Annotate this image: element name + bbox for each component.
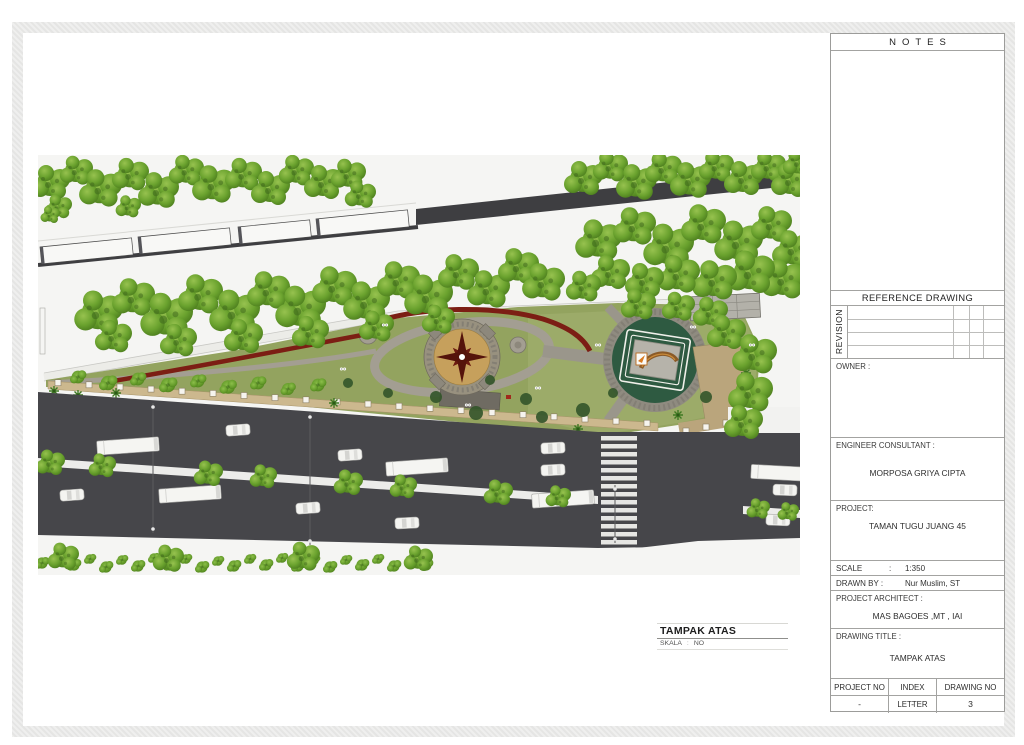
revision-col-line <box>953 306 954 358</box>
owner-section: OWNER : <box>831 359 1004 438</box>
plan-scale-label: SKALA <box>660 640 682 647</box>
scale-colon: : <box>889 561 891 576</box>
engineer-consultant-section: ENGINEER CONSULTANT : MORPOSA GRIYA CIPT… <box>831 438 1004 501</box>
notes-header: NOTES <box>831 34 1004 51</box>
number-table-value-row: - - 3 <box>831 696 1004 713</box>
plan-caption: TAMPAK ATAS SKALA:NO <box>657 623 788 650</box>
index-letter-header: INDEX LETTER <box>889 679 937 695</box>
plan-caption-title: TAMPAK ATAS <box>657 624 788 639</box>
monument-plaza <box>603 308 707 412</box>
drawing-title-label: DRAWING TITLE : <box>836 632 901 641</box>
project-architect-name: MAS BAGOES ,MT , IAI <box>831 611 1004 621</box>
revision-table: REVISION <box>831 306 1004 359</box>
drawing-title-section: DRAWING TITLE : TAMPAK ATAS <box>831 629 1004 679</box>
drawing-no-header: DRAWING NO <box>937 679 1004 695</box>
plan-caption-scale: SKALA:NO <box>657 639 788 650</box>
project-label: PROJECT: <box>836 504 874 513</box>
revision-row-line <box>848 345 1004 346</box>
project-no-header: PROJECT NO <box>831 679 889 695</box>
scale-row: SCALE : 1:350 <box>831 561 1004 576</box>
revision-row-line <box>848 332 1004 333</box>
owner-label: OWNER : <box>836 362 870 371</box>
drawn-by-row: DRAWN BY : Nur Muslim, ST <box>831 576 1004 591</box>
site-plan-svg <box>38 155 800 575</box>
revision-col-line <box>969 306 970 358</box>
engineer-consultant-name: MORPOSA GRIYA CIPTA <box>831 468 1004 478</box>
project-no-value: - <box>831 696 889 713</box>
project-name: TAMAN TUGU JUANG 45 <box>831 521 1004 531</box>
revision-label-cell: REVISION <box>831 306 848 358</box>
reference-drawing-header: REFERENCE DRAWING <box>831 291 1004 306</box>
number-table-header-row: PROJECT NO INDEX LETTER DRAWING NO <box>831 679 1004 696</box>
drawn-by-label: DRAWN BY : <box>836 576 883 591</box>
project-section: PROJECT: TAMAN TUGU JUANG 45 <box>831 501 1004 561</box>
drawn-by-value: Nur Muslim, ST <box>905 576 960 591</box>
index-letter-value: - <box>889 696 937 713</box>
revision-label: REVISION <box>834 309 844 354</box>
revision-col-line <box>983 306 984 358</box>
project-architect-label: PROJECT ARCHITECT : <box>836 594 923 603</box>
engineer-consultant-label: ENGINEER CONSULTANT : <box>836 441 935 450</box>
plan-scale-colon: : <box>687 640 689 647</box>
scale-label: SCALE <box>836 561 862 576</box>
drawing-title-value: TAMPAK ATAS <box>831 653 1004 663</box>
drawing-no-value: 3 <box>937 696 1004 713</box>
project-architect-section: PROJECT ARCHITECT : MAS BAGOES ,MT , IAI <box>831 591 1004 629</box>
plan-scale-value: NO <box>694 640 704 647</box>
title-block: NOTES REFERENCE DRAWING REVISION OWNER :… <box>830 33 1005 712</box>
revision-row-line <box>848 319 1004 320</box>
site-plan-drawing <box>38 155 800 575</box>
scale-value: 1:350 <box>905 561 925 576</box>
west-platform-bar <box>40 308 45 354</box>
notes-box <box>831 51 1004 291</box>
drawing-sheet: TAMPAK ATAS SKALA:NO NOTES REFERENCE DRA… <box>0 0 1024 745</box>
